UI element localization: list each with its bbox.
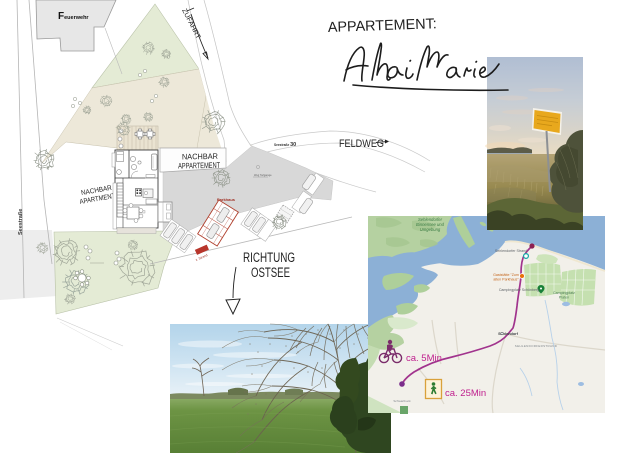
svg-text:SEHLENDORFERSTRAND: SEHLENDORFERSTRAND bbox=[515, 344, 558, 348]
svg-text:RICHTUNG: RICHTUNG bbox=[243, 250, 295, 265]
svg-text:OSTSEE: OSTSEE bbox=[251, 265, 290, 280]
svg-text:Campingplatz: Campingplatz bbox=[553, 291, 575, 295]
svg-text:Parkhaus: Parkhaus bbox=[217, 197, 236, 202]
svg-text:Weg Tiefgarage: Weg Tiefgarage bbox=[254, 174, 272, 177]
svg-text:Campingplatz Schönberg: Campingplatz Schönberg bbox=[499, 288, 539, 292]
svg-text:FELDWEG: FELDWEG bbox=[339, 138, 384, 150]
svg-text:Umgebung: Umgebung bbox=[420, 227, 441, 232]
svg-text:Platen: Platen bbox=[559, 296, 569, 300]
svg-text:ca. 5Min: ca. 5Min bbox=[406, 353, 442, 364]
svg-text:alten Parkhaus": alten Parkhaus" bbox=[493, 278, 519, 282]
svg-text:Schwartbuck: Schwartbuck bbox=[393, 399, 411, 403]
svg-text:APPARTEMENT: APPARTEMENT bbox=[178, 161, 220, 171]
svg-text:Sehlendorfer Strand: Sehlendorfer Strand bbox=[495, 249, 527, 253]
svg-text:Gaststätte "Zum: Gaststätte "Zum bbox=[493, 273, 519, 277]
svg-text:Seestraße: Seestraße bbox=[18, 209, 24, 235]
svg-text:ca. 25Min: ca. 25Min bbox=[445, 388, 486, 399]
